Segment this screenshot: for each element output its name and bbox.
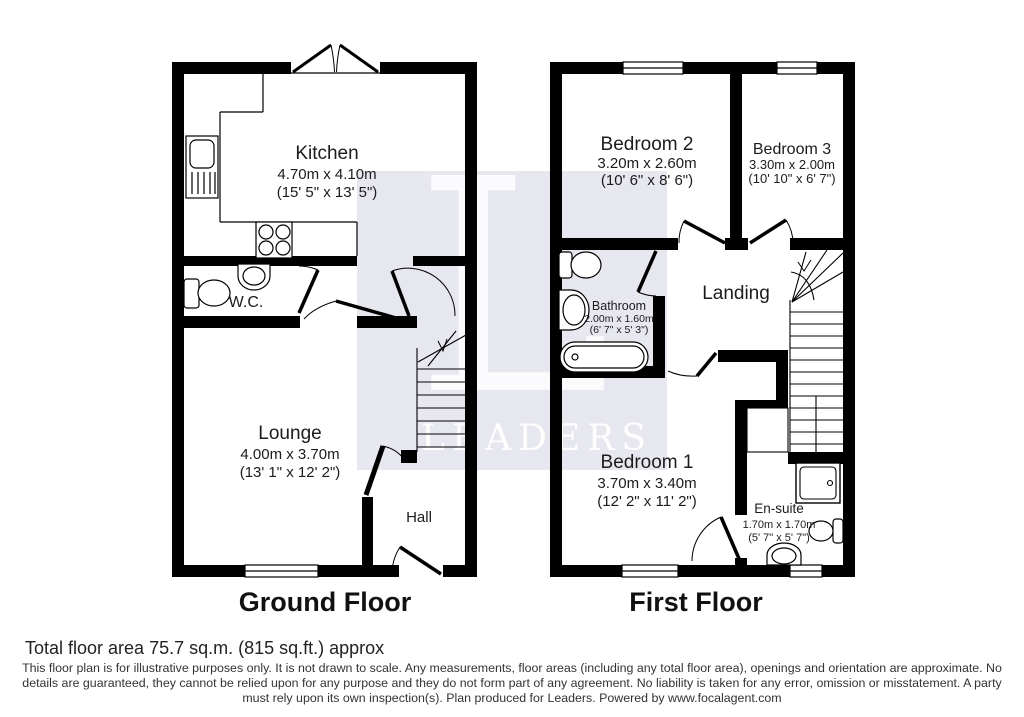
disclaimer-line-3: must rely upon its own inspection(s). Pl…: [0, 691, 1024, 705]
ground-stairs-icon: [417, 331, 466, 452]
ground-floor-plan: [172, 45, 477, 577]
bath-icon: [560, 342, 648, 372]
ensuite-basin-icon: [767, 543, 801, 565]
ensuite-door-icon: [692, 517, 740, 561]
bedroom2-label: Bedroom 2: [601, 134, 694, 156]
bedroom2-door-icon: [679, 221, 725, 243]
cupboard: [747, 408, 788, 452]
bedroom2-imperial: (10' 6" x 8' 6"): [601, 172, 693, 189]
ensuite-window-icon: [790, 565, 822, 577]
bedroom3-imperial: (10' 10" x 6' 7"): [748, 171, 835, 186]
bedroom3-door-icon: [750, 220, 793, 243]
kitchen-imperial: (15' 5" x 13' 5"): [277, 184, 378, 201]
lounge-door-icon: [366, 446, 403, 495]
floorplan-page: L LEADERS: [0, 0, 1024, 717]
bathroom-door-icon: [638, 251, 656, 296]
landing-label: Landing: [702, 283, 770, 305]
ensuite-label: En-suite: [754, 501, 804, 516]
kitchen-label: Kitchen: [295, 143, 358, 165]
bathroom-label: Bathroom: [592, 299, 646, 313]
disclaimer-line-1: This floor plan is for illustrative purp…: [0, 661, 1024, 675]
bedroom1-imperial: (12' 2" x 11' 2"): [597, 493, 696, 510]
disclaimer-line-2: details are guaranteed, they cannot be r…: [0, 676, 1024, 690]
bathroom-toilet-icon: [559, 252, 601, 278]
first-floor-title: First Floor: [629, 587, 763, 618]
bedroom3-metric: 3.30m x 2.00m: [749, 157, 835, 172]
kitchen-metric: 4.70m x 4.10m: [277, 166, 376, 183]
front-door-icon: [392, 547, 441, 574]
hall-label: Hall: [406, 509, 432, 526]
total-floor-area: Total floor area 75.7 sq.m. (815 sq.ft.)…: [25, 638, 384, 659]
french-doors-icon: [291, 45, 380, 73]
bedroom3-window-icon: [777, 62, 817, 74]
lounge-label: Lounge: [258, 423, 321, 445]
bedroom1-window-icon: [622, 565, 678, 577]
kitchen-door-icon: [392, 268, 455, 316]
bedroom1-metric: 3.70m x 3.40m: [597, 475, 696, 492]
bathroom-imperial: (6' 7" x 5' 3"): [590, 324, 649, 336]
bedroom2-metric: 3.20m x 2.60m: [597, 155, 696, 172]
lounge-metric: 4.00m x 3.70m: [240, 446, 339, 463]
floorplan-drawing: [0, 0, 1024, 640]
ground-floor-title: Ground Floor: [239, 587, 411, 618]
kitchen-sink-icon: [186, 136, 218, 198]
bedroom2-window-icon: [623, 62, 683, 74]
first-stairs-icon: [790, 250, 843, 452]
lounge-imperial: (13' 1" x 12' 2"): [240, 464, 341, 481]
lounge-window-icon: [245, 565, 318, 577]
bedroom1-label: Bedroom 1: [601, 452, 694, 474]
wc-door-icon: [299, 266, 318, 313]
ensuite-imperial: (5' 7" x 5' 7"): [748, 532, 810, 544]
bedroom1-door-icon: [668, 353, 716, 376]
hob-icon: [256, 222, 292, 258]
wc-basin-icon: [238, 264, 270, 290]
wc-toilet-icon: [184, 279, 230, 308]
shower-icon: [796, 463, 840, 503]
wc-label: W.C.: [229, 294, 264, 312]
ensuite-metric: 1.70m x 1.70m: [743, 519, 816, 531]
